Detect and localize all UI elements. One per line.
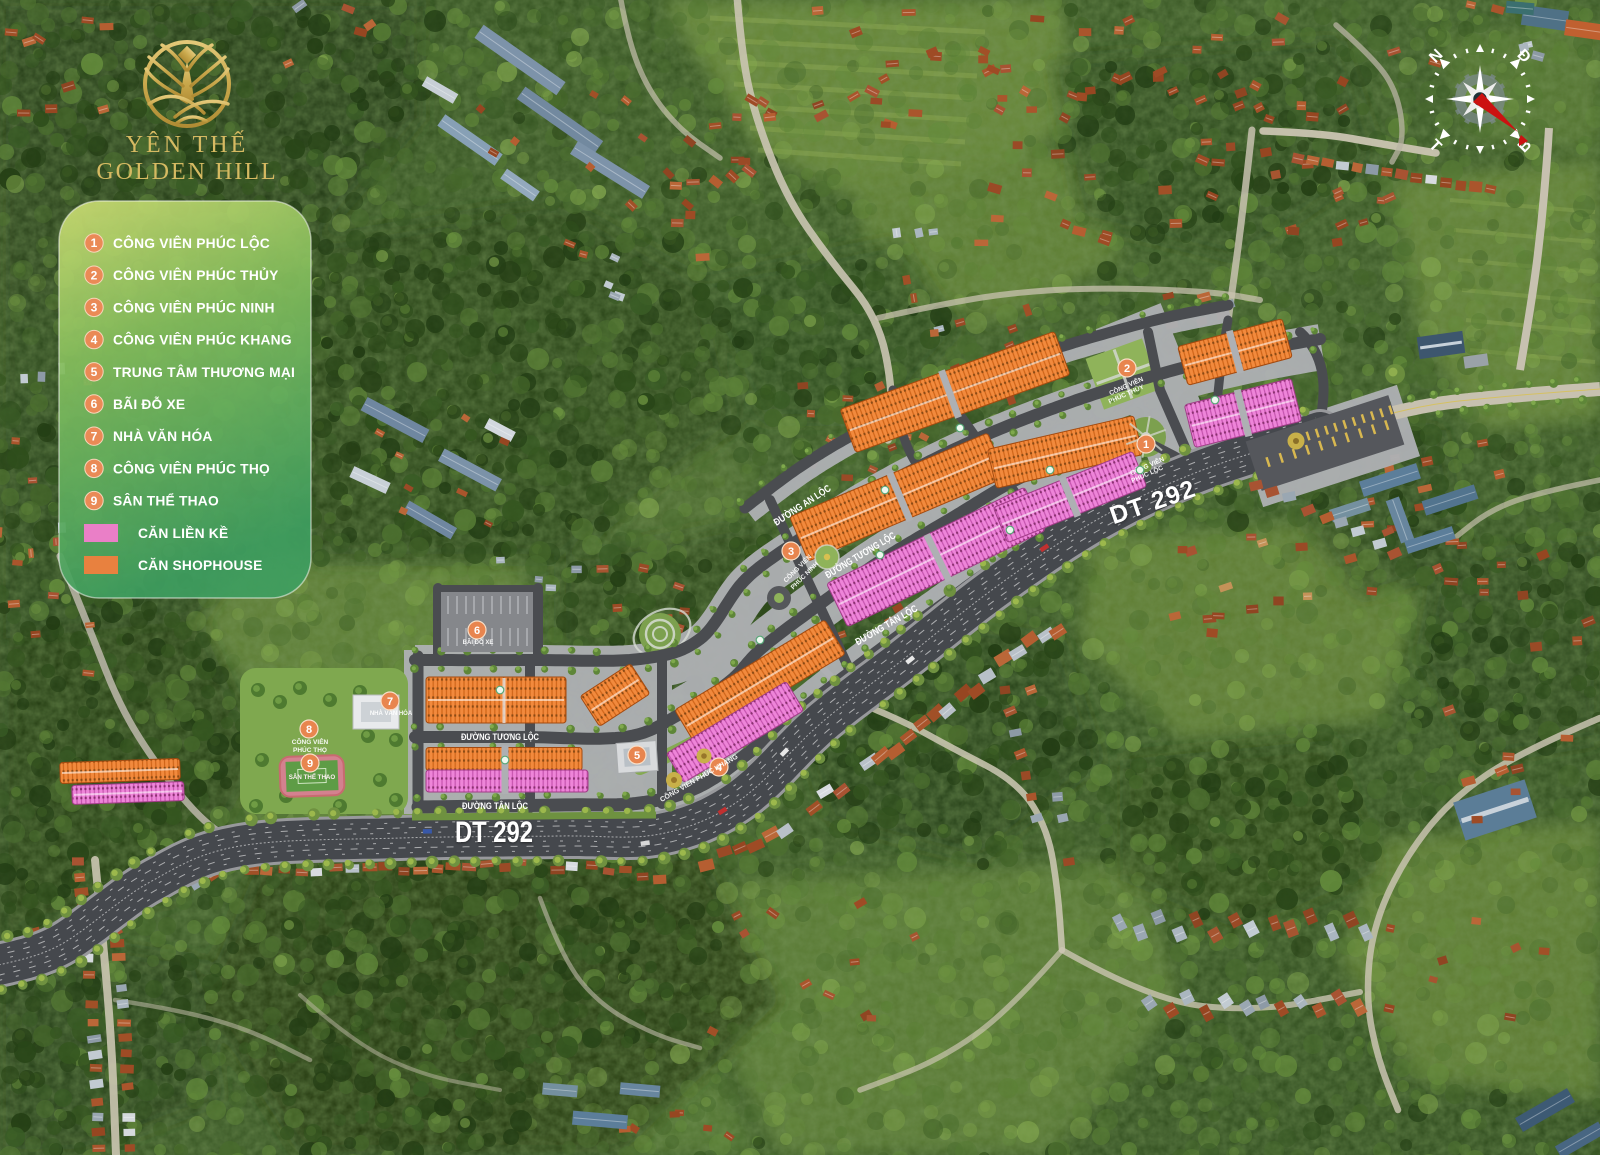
svg-text:YÊN THẾ: YÊN THẾ [126, 131, 249, 158]
svg-text:3: 3 [788, 546, 794, 558]
svg-text:CÔNG VIÊN PHÚC THỦY: CÔNG VIÊN PHÚC THỦY [113, 266, 279, 283]
svg-text:ĐƯỜNG TÂN LỘC: ĐƯỜNG TÂN LỘC [462, 800, 528, 811]
svg-text:5: 5 [91, 365, 98, 379]
svg-text:CÔNG VIÊN PHÚC THỌ: CÔNG VIÊN PHÚC THỌ [113, 459, 270, 476]
svg-text:5: 5 [634, 750, 640, 762]
svg-text:GOLDEN HILL: GOLDEN HILL [96, 159, 277, 185]
svg-text:9: 9 [307, 758, 313, 770]
svg-text:CÔNG VIÊN PHÚC NINH: CÔNG VIÊN PHÚC NINH [113, 298, 275, 315]
svg-text:6: 6 [91, 397, 98, 411]
svg-text:TRUNG TÂM THƯƠNG MẠI: TRUNG TÂM THƯƠNG MẠI [113, 363, 295, 380]
svg-text:CĂN LIỀN KỀ: CĂN LIỀN KỀ [138, 525, 228, 541]
svg-text:2: 2 [91, 268, 98, 282]
svg-text:3: 3 [91, 301, 98, 315]
svg-text:ĐƯỜNG TƯƠNG LỘC: ĐƯỜNG TƯƠNG LỘC [461, 731, 539, 742]
svg-text:1: 1 [91, 236, 98, 250]
svg-text:BÃI ĐỖ XE: BÃI ĐỖ XE [463, 639, 494, 646]
svg-text:8: 8 [91, 462, 98, 476]
svg-text:CÔNG VIÊN PHÚC LỘC: CÔNG VIÊN PHÚC LỘC [113, 234, 270, 251]
svg-text:CÔNG VIÊN PHÚC KHANG: CÔNG VIÊN PHÚC KHANG [113, 331, 292, 348]
svg-text:1: 1 [1143, 439, 1149, 451]
svg-text:9: 9 [91, 494, 98, 508]
svg-text:BÃI ĐỖ XE: BÃI ĐỖ XE [113, 395, 185, 412]
svg-text:6: 6 [474, 625, 480, 637]
svg-text:NHÀ VĂN HÓA: NHÀ VĂN HÓA [113, 427, 213, 444]
svg-text:PHÚC THỌ: PHÚC THỌ [293, 745, 327, 754]
svg-text:8: 8 [306, 724, 312, 736]
svg-text:CÔNG VIÊN: CÔNG VIÊN [292, 737, 329, 746]
svg-text:CĂN SHOPHOUSE: CĂN SHOPHOUSE [138, 557, 263, 573]
svg-text:SÂN THỂ THAO: SÂN THỂ THAO [289, 774, 336, 781]
svg-text:2: 2 [1124, 363, 1130, 375]
svg-text:DT 292: DT 292 [455, 816, 533, 849]
svg-text:7: 7 [387, 696, 393, 708]
svg-text:NHÀ VĂN HÓA: NHÀ VĂN HÓA [370, 709, 413, 717]
svg-text:SÂN THỂ THAO: SÂN THỂ THAO [113, 492, 219, 509]
svg-text:7: 7 [91, 429, 98, 443]
svg-text:4: 4 [91, 333, 98, 347]
